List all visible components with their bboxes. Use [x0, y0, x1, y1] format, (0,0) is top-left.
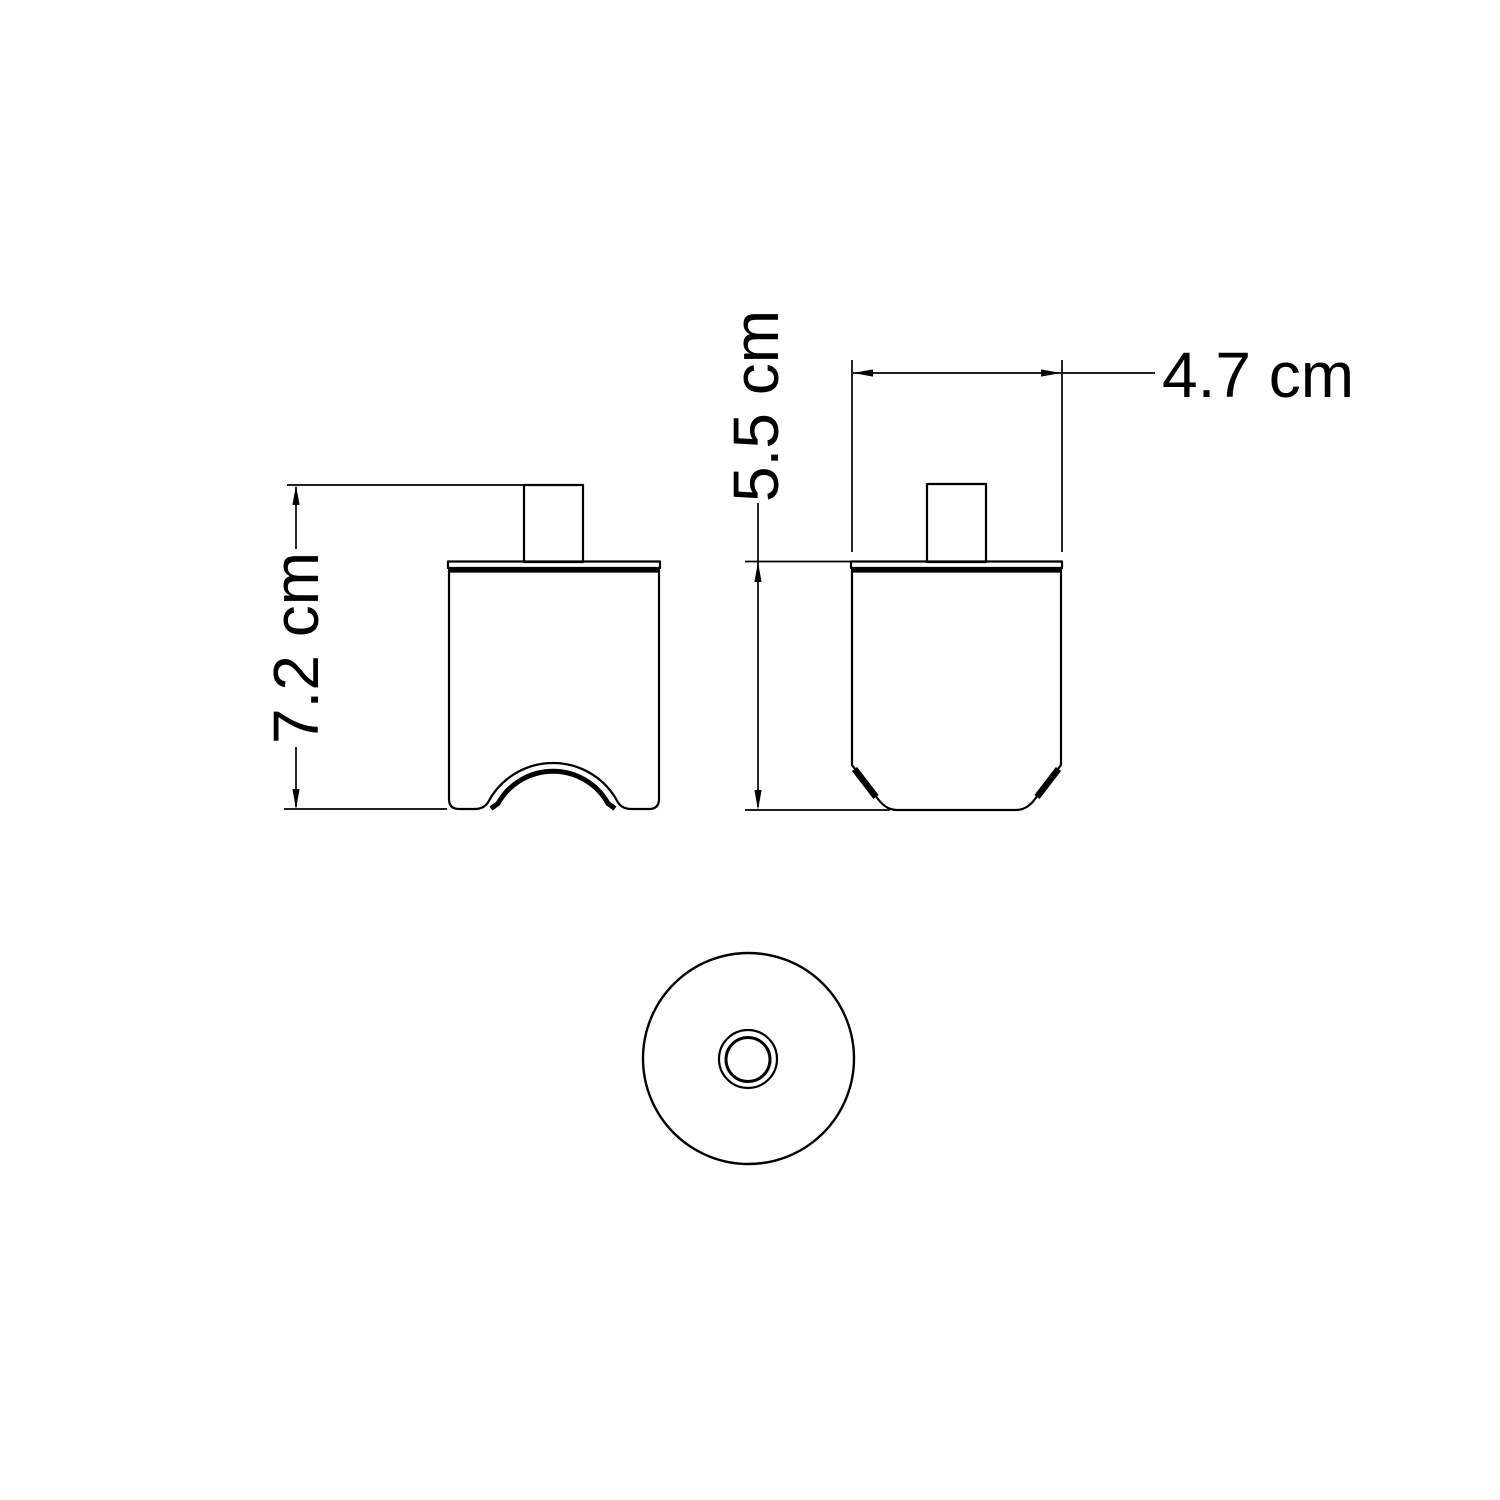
drawing-svg: 7.2 cm 4.7 cm	[0, 0, 1500, 1500]
side-height-arrow-down	[754, 790, 761, 810]
side-height-label: 5.5 cm	[720, 310, 792, 502]
side-view-stem	[927, 484, 986, 562]
front-view-stem	[524, 485, 583, 562]
front-view-flange	[448, 562, 660, 569]
technical-drawing-canvas: 7.2 cm 4.7 cm	[0, 0, 1500, 1500]
side-view-chamfer-left	[855, 769, 877, 797]
side-width-label: 4.7 cm	[1162, 339, 1354, 411]
side-height-arrow-up	[754, 562, 761, 582]
side-height-dimension: 5.5 cm	[720, 310, 890, 810]
bottom-view-outline-circle	[643, 953, 854, 1164]
side-view-chamfer-right	[1037, 769, 1059, 797]
side-view	[851, 484, 1062, 810]
bottom-view-cable-hole-circle	[726, 1038, 770, 1082]
side-view-flange	[851, 562, 1062, 569]
front-height-arrow-down	[292, 789, 299, 809]
front-height-arrow-up	[292, 485, 299, 505]
bottom-view	[643, 953, 854, 1164]
front-height-dimension: 7.2 cm	[260, 485, 583, 809]
front-height-label: 7.2 cm	[260, 552, 332, 744]
front-view	[448, 485, 660, 809]
side-width-arrow-right	[1041, 369, 1061, 376]
side-view-body	[852, 572, 1061, 811]
side-width-arrow-left	[853, 369, 873, 376]
